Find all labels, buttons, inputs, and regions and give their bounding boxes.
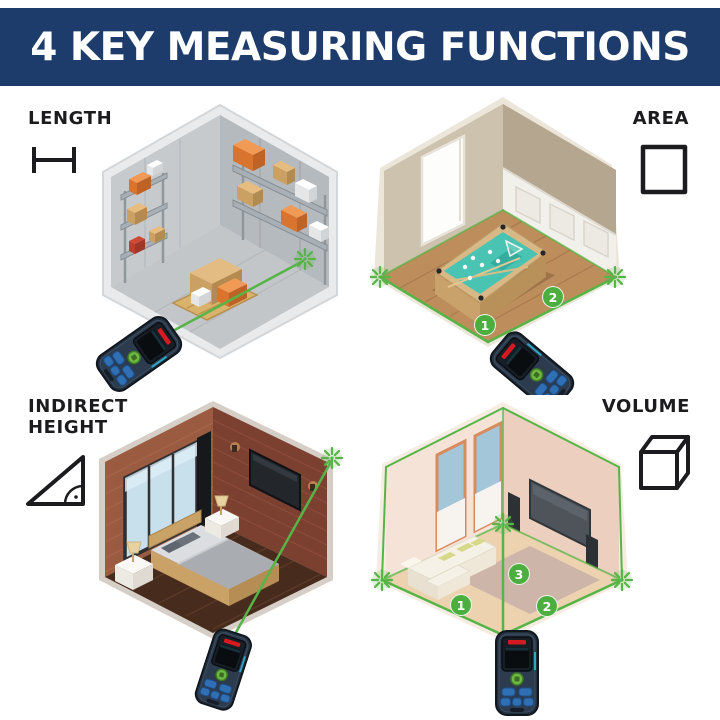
pool-room-illustration: [370, 95, 630, 395]
measurement-step-badge: 3: [508, 563, 530, 585]
page-title: 4 KEY MEASURING FUNCTIONS: [30, 25, 690, 70]
infographic-page: 4 KEY MEASURING FUNCTIONS LENGTH AREA IN…: [0, 0, 720, 720]
area-square-icon: [640, 144, 688, 195]
measurement-step-badge: 1: [474, 314, 496, 336]
set-square-icon: [26, 454, 86, 507]
measurement-step-badge: 2: [536, 595, 558, 617]
bedroom-illustration: [85, 400, 350, 718]
section-label-area: AREA: [633, 108, 689, 129]
header-banner: 4 KEY MEASURING FUNCTIONS: [0, 8, 720, 86]
length-extents-icon: [31, 145, 77, 175]
laser-measure-device: [496, 631, 538, 715]
living-room-illustration: [368, 400, 644, 720]
storage-room-illustration: [95, 95, 345, 395]
measurement-step-badge: 2: [542, 286, 564, 308]
cube-icon: [638, 432, 692, 492]
laser-measure-device: [193, 627, 254, 712]
measurement-step-badge: 1: [450, 594, 472, 616]
